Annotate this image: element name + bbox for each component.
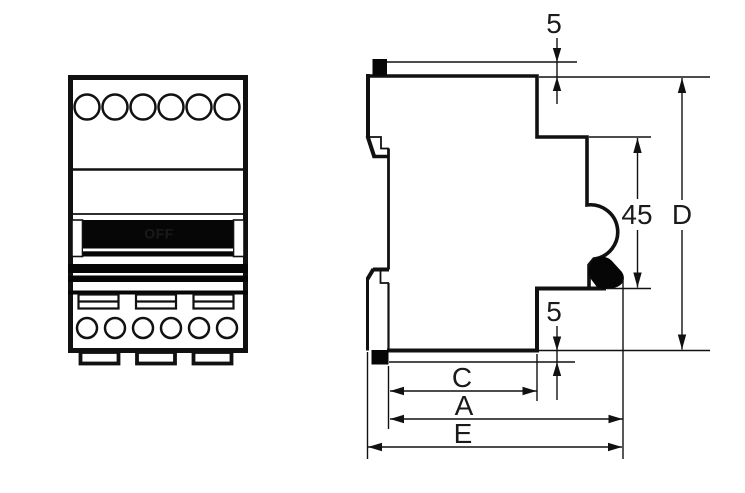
arrowhead-down: [678, 335, 686, 350]
mounting-foot: [81, 352, 119, 364]
dim-label-bottom-5: 5: [546, 296, 562, 327]
arrowhead-right: [609, 415, 623, 423]
arrowhead-left: [390, 415, 404, 423]
front-mounting-feet: [81, 352, 232, 364]
dim-label-45: 45: [621, 199, 652, 230]
front-screw-slots: [79, 295, 234, 309]
arrowhead-up: [553, 77, 561, 91]
arrowhead-up: [678, 78, 686, 93]
front-stripe: [68, 264, 248, 273]
breaker-dimension-drawing: OFF: [0, 0, 745, 493]
side-lower-step-notch: [381, 272, 390, 284]
drawing-svg: OFF: [0, 0, 745, 493]
toggle-side-tab-left: [72, 220, 83, 257]
dimension-e: E: [368, 418, 622, 451]
arrowhead-down: [553, 48, 561, 62]
toggle-side-tab-right: [234, 220, 245, 257]
dimension-45: 45: [621, 138, 652, 288]
arrowhead-down: [633, 273, 641, 288]
dim-label-top-5: 5: [546, 8, 562, 39]
front-stripe: [68, 276, 248, 283]
side-profile-top-right: [366, 76, 618, 287]
side-profile-bottom: [387, 289, 606, 351]
side-view: [366, 59, 624, 365]
side-upper-chamfer: [368, 136, 375, 158]
toggle-off-label: OFF: [144, 226, 174, 242]
dim-label-a: A: [455, 390, 474, 421]
dimension-bottom-5: 5: [546, 296, 562, 400]
arrowhead-up: [553, 362, 561, 376]
dimension-a: A: [390, 390, 623, 423]
arrowhead-left: [368, 443, 382, 451]
dim-label-d: D: [672, 199, 692, 230]
dimension-d: D: [672, 78, 692, 350]
top-terminal-screw-black: [373, 59, 388, 76]
mounting-foot: [194, 352, 232, 364]
arrowhead-right: [608, 443, 622, 451]
side-lower-chamfer: [368, 269, 374, 279]
arrowhead-left: [390, 387, 404, 395]
hook-pawl-black: [589, 257, 624, 290]
toggle-separator-slot: [83, 249, 233, 252]
arrowhead-up: [633, 138, 641, 153]
dim-label-e: E: [454, 418, 473, 449]
dim-label-c: C: [452, 362, 472, 393]
mounting-foot: [137, 352, 175, 364]
arrowhead-right: [523, 387, 537, 395]
front-toggle-assembly: OFF: [72, 220, 244, 257]
front-view: OFF: [68, 78, 248, 364]
arrowhead-down: [553, 337, 561, 351]
din-clip-foot-black: [372, 350, 389, 365]
dimension-top-5: 5: [546, 8, 562, 104]
